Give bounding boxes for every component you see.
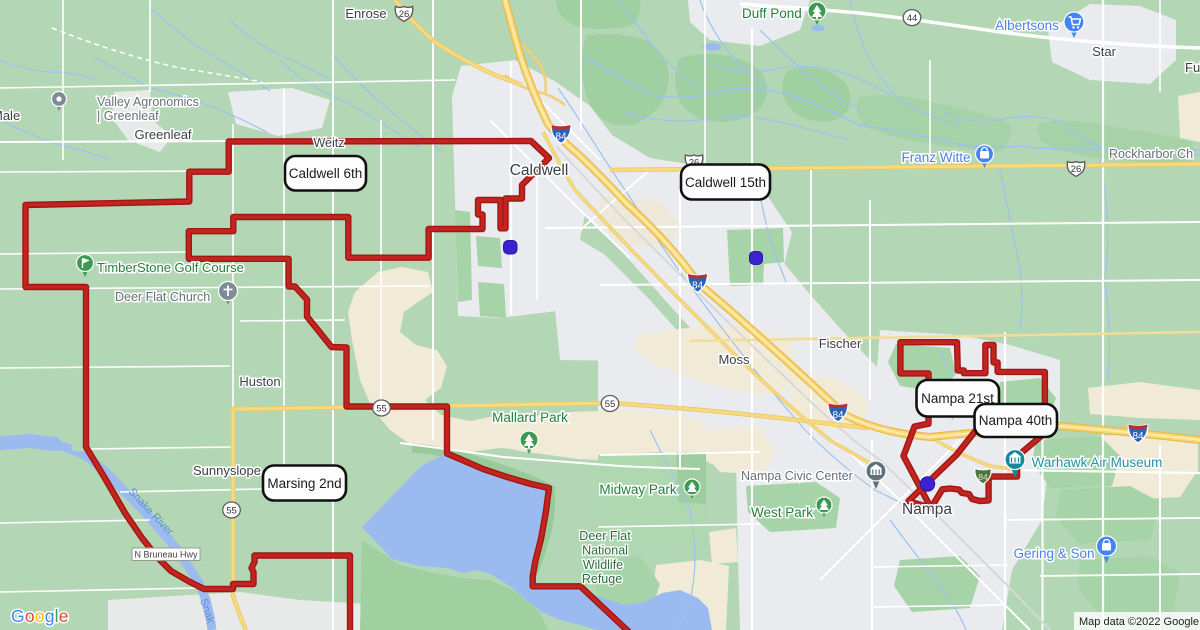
svg-text:84: 84 <box>692 280 704 291</box>
svg-text:55: 55 <box>376 403 387 414</box>
svg-text:Duff Pond: Duff Pond <box>742 6 802 21</box>
svg-text:Deer Flat Church: Deer Flat Church <box>115 290 210 304</box>
svg-text:Google: Google <box>11 606 69 626</box>
svg-text:84: 84 <box>832 410 844 421</box>
svg-text:N Bruneau Hwy: N Bruneau Hwy <box>134 550 198 560</box>
svg-text:Rockharbor Ch: Rockharbor Ch <box>1109 147 1193 161</box>
svg-text:26: 26 <box>399 9 410 20</box>
svg-text:Full: Full <box>1185 60 1200 75</box>
svg-text:Warhawk Air Museum: Warhawk Air Museum <box>1032 455 1163 470</box>
svg-text:55: 55 <box>226 505 237 516</box>
svg-text:26: 26 <box>1071 164 1082 175</box>
svg-text:Refuge: Refuge <box>582 572 622 586</box>
svg-text:Greenleaf: Greenleaf <box>134 127 191 142</box>
svg-text:Nampa Civic Center: Nampa Civic Center <box>741 469 853 483</box>
svg-text:44: 44 <box>907 13 918 24</box>
svg-text:Star: Star <box>1092 44 1117 59</box>
svg-text:84: 84 <box>1132 431 1144 442</box>
svg-text:Male: Male <box>0 108 20 123</box>
svg-text:Mallard Park: Mallard Park <box>492 410 568 425</box>
svg-text:Map data ©2022 Google: Map data ©2022 Google <box>1079 616 1199 628</box>
svg-text:Moss: Moss <box>718 352 750 367</box>
svg-text:Enrose: Enrose <box>345 6 386 21</box>
svg-text:55: 55 <box>605 399 616 410</box>
svg-text:National: National <box>582 544 628 558</box>
svg-text:Caldwell 15th: Caldwell 15th <box>685 175 766 190</box>
svg-text:TimberStone Golf Course: TimberStone Golf Course <box>97 260 244 275</box>
svg-text:Caldwell: Caldwell <box>510 162 569 179</box>
svg-text:84: 84 <box>555 131 567 142</box>
svg-text:Marsing 2nd: Marsing 2nd <box>267 476 341 491</box>
svg-text:Nampa 40th: Nampa 40th <box>979 413 1053 428</box>
svg-text:Sunnyslope: Sunnyslope <box>193 463 261 478</box>
svg-text:Midway Park: Midway Park <box>599 482 677 497</box>
svg-text:Huston: Huston <box>239 374 280 389</box>
svg-text:Wildlife: Wildlife <box>583 558 623 572</box>
svg-text:Gering & Son: Gering & Son <box>1013 546 1094 561</box>
svg-text:Nampa: Nampa <box>902 501 952 518</box>
svg-text:84: 84 <box>978 472 988 482</box>
svg-text:Valley Agronomics: Valley Agronomics <box>97 95 199 109</box>
svg-text:Albertsons: Albertsons <box>995 18 1059 33</box>
svg-text:West Park: West Park <box>751 505 813 520</box>
svg-text:Franz Witte: Franz Witte <box>901 150 970 165</box>
svg-text:Caldwell 6th: Caldwell 6th <box>289 166 363 181</box>
svg-text:Fischer: Fischer <box>819 336 862 351</box>
svg-text:Deer Flat: Deer Flat <box>579 529 631 543</box>
svg-text:Weitz: Weitz <box>313 136 344 150</box>
svg-text:| Greenleaf: | Greenleaf <box>97 109 159 123</box>
